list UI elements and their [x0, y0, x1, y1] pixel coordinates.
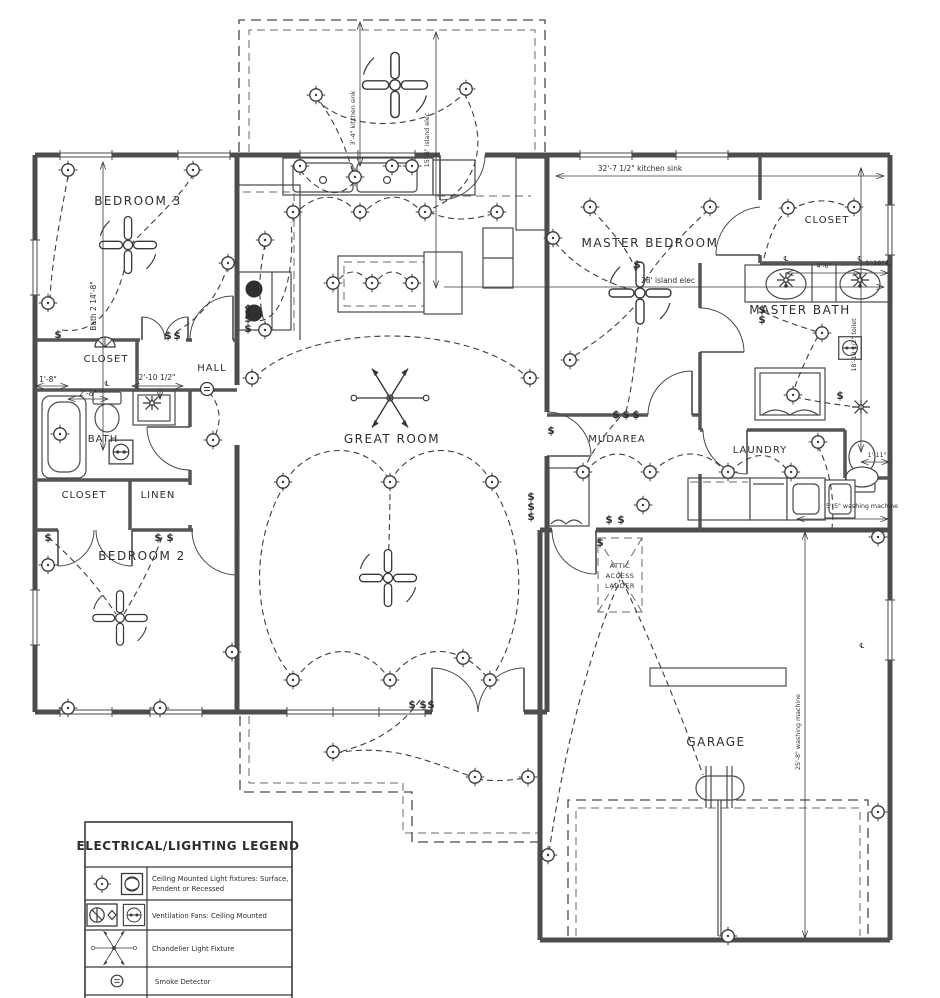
garage-opener [696, 766, 744, 936]
toilet [93, 392, 121, 404]
svg-text:$: $ [622, 409, 629, 421]
legend-smoke-detector-icon [111, 975, 123, 987]
legend-row1-line1: Ceiling Mounted Light fixtures: Surface, [152, 875, 288, 883]
legend-title: ELECTRICAL/LIGHTING LEGEND [76, 839, 299, 853]
smoke-detector [201, 383, 214, 396]
dim-1-8: 1'-8" [39, 375, 57, 384]
attic-label-1: ATTIC [610, 562, 631, 570]
attic-label-3: LADDER [605, 582, 635, 590]
svg-text:$: $ [419, 699, 426, 711]
room-label-laundry: LAUNDRY [733, 445, 788, 456]
svg-text:$: $ [605, 514, 612, 526]
dim-1-10: 1'-10" [866, 260, 885, 267]
chandelier [351, 369, 429, 428]
windows [30, 150, 895, 717]
fans-and-vents [93, 52, 870, 645]
svg-text:$: $ [244, 323, 251, 335]
shower [133, 391, 175, 425]
legend-row1-line2: Pendent or Recessed [152, 885, 224, 893]
dim-4-6: 4'-6" [817, 263, 832, 270]
centerline-mark: ℄ [858, 255, 863, 263]
dim-island-elec-h: 28' island elec [641, 276, 695, 285]
centerline-mark: ℄ [105, 380, 110, 388]
room-label-bedroom2: BEDROOM 2 [98, 549, 186, 563]
svg-text:$: $ [547, 425, 554, 437]
legend-row3-label: Chandelier Light Fixture [152, 945, 234, 953]
svg-text:$: $ [612, 409, 619, 421]
svg-text:$: $ [164, 330, 171, 342]
dim-kitchen-sink-h: 32'-7 1/2" kitchen sink [598, 164, 683, 173]
room-label-closet2: CLOSET [62, 490, 107, 501]
dim-2-8: 2'-8" [79, 389, 97, 398]
ceiling-fan [93, 591, 148, 646]
centerline-mark: ℄ [886, 259, 891, 267]
room-label-bedroom3: BEDROOM 3 [94, 194, 182, 208]
legend-recessed-light-icon [122, 874, 143, 895]
centerline-mark: ℄ [784, 255, 789, 263]
dim-bath2: Bath 2 14'-8" [89, 281, 98, 331]
ceiling-fan [609, 262, 671, 324]
svg-text:$: $ [154, 532, 161, 544]
dim-island-elec-v: 15'-6" island elec [424, 112, 431, 167]
svg-text:$: $ [54, 329, 61, 341]
svg-text:$: $ [408, 699, 415, 711]
svg-text:$: $ [596, 537, 603, 549]
svg-text:$: $ [632, 409, 639, 421]
fixtures [42, 158, 890, 936]
dim-washer-v: 25'-8" washing machine [795, 694, 802, 770]
ceiling-fan [359, 549, 416, 606]
svg-text:$: $ [44, 532, 51, 544]
room-label-hall: HALL [197, 363, 227, 374]
dim-2-10: 2'-10 1/2" [139, 373, 176, 382]
svg-text:$: $ [527, 511, 534, 523]
legend: ELECTRICAL/LIGHTING LEGEND Ceiling Mount… [76, 822, 299, 998]
floor-plan-canvas: $ $ $ $ $ $ $ $ $ $ $ $ $ $ $ $ $ $ $ $ … [0, 0, 940, 998]
ceiling-fan [362, 52, 427, 117]
room-label-bath: BATH [88, 434, 119, 445]
room-label-master-closet: CLOSET [805, 215, 850, 226]
room-label-mudarea: MUDAREA [588, 434, 645, 445]
fan-light [143, 396, 161, 410]
legend-vent-fan-a-icon [87, 904, 117, 926]
switches: $ $ $ $ $ $ $ $ $ $ $ $ $ $ $ $ $ $ $ $ … [44, 259, 843, 711]
room-label-garage: GARAGE [686, 735, 745, 749]
room-label-master-bath: MASTER BATH [749, 303, 851, 317]
laundry-counter [688, 478, 750, 520]
legend-row4-label: Smoke Detector [155, 978, 211, 986]
dim-1-11: 1'-11" [868, 452, 887, 459]
legend-vent-fan-b-icon [123, 904, 144, 925]
attic-label-2: ACCESS [606, 572, 635, 580]
centerline-mark: ℄ [860, 642, 865, 650]
room-label-linen: LINEN [141, 490, 176, 501]
pantry-cabinet [516, 158, 545, 230]
room-label-great-room: GREAT ROOM [344, 432, 440, 446]
svg-text:$: $ [836, 390, 843, 402]
svg-text:$: $ [427, 699, 434, 711]
legend-row2-label: Ventilation Fans: Ceiling Mounted [152, 912, 267, 920]
dim-kitchen-sink-v: 3'-4" kitchen sink [350, 90, 357, 145]
svg-text:$: $ [173, 330, 180, 342]
dim-washer-h: 5'-5" washing machine [826, 503, 898, 510]
svg-text:$: $ [166, 532, 173, 544]
room-label-closet1: CLOSET [84, 354, 129, 365]
fluorescent-fixture [650, 668, 786, 686]
svg-text:$: $ [617, 514, 624, 526]
room-label-master-bedroom: MASTER BEDROOM [582, 236, 719, 250]
dim-toilet-v: 18'-10 1/2" toilet [851, 318, 858, 372]
ceiling-fan [99, 216, 156, 273]
svg-text:$: $ [633, 259, 640, 271]
